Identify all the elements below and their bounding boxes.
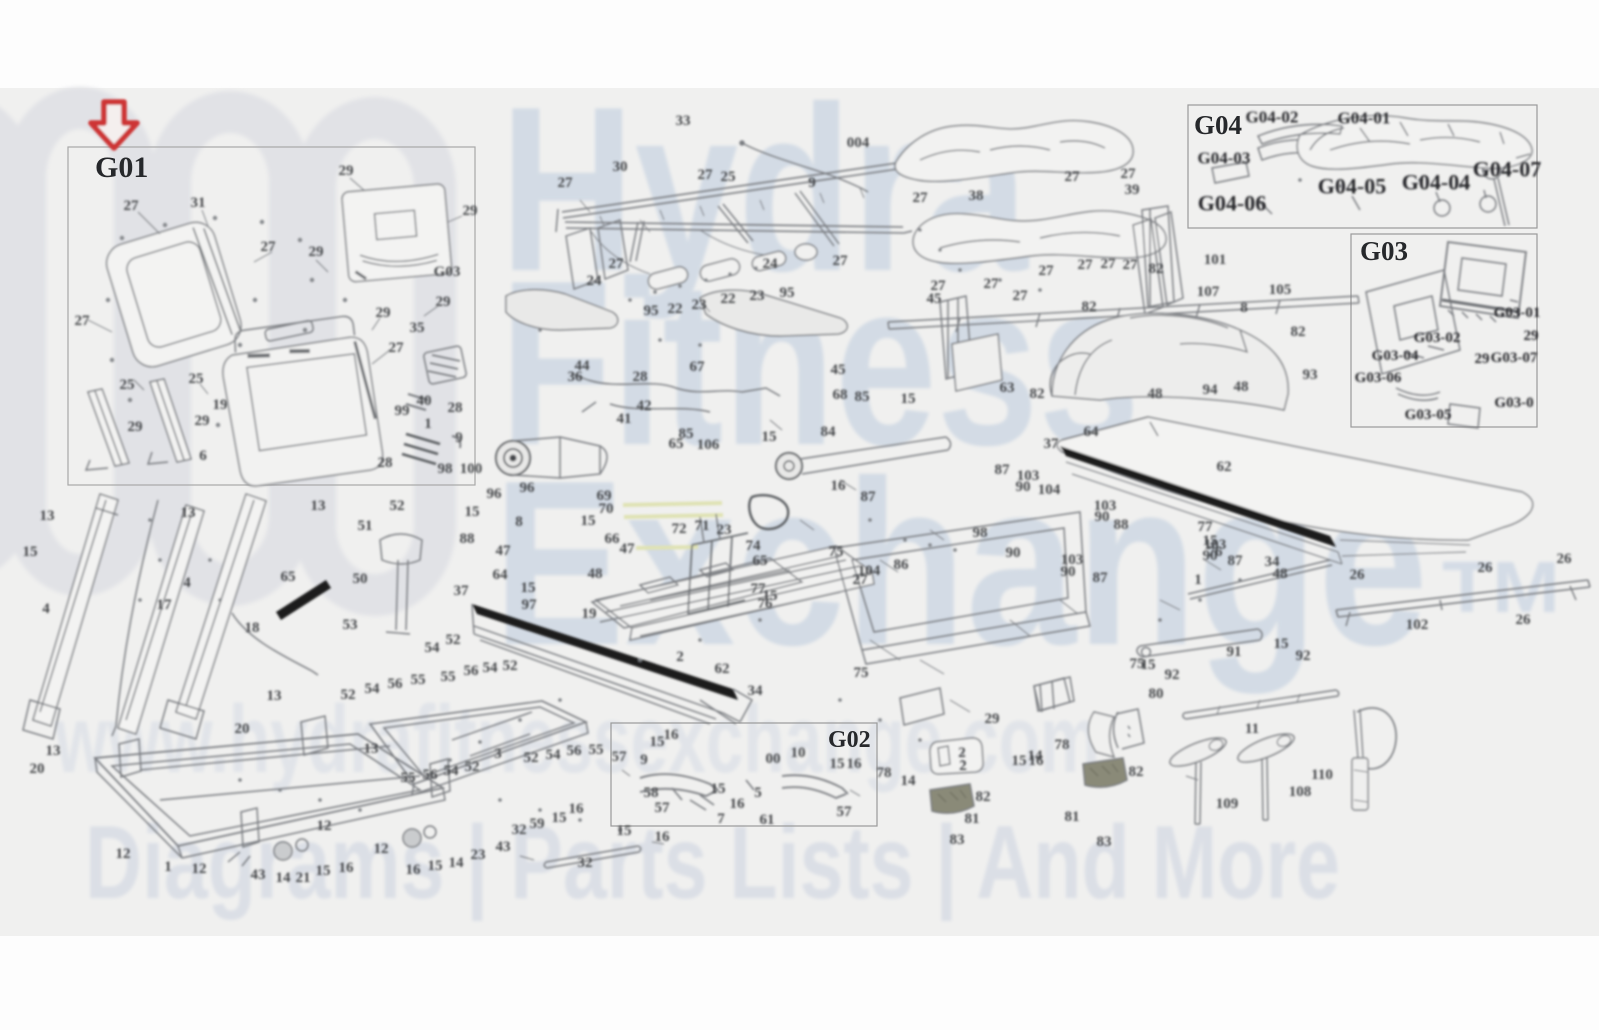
svg-text:33: 33 — [676, 113, 691, 129]
svg-text:92: 92 — [1165, 667, 1180, 683]
svg-text:61: 61 — [760, 812, 775, 828]
svg-text:52: 52 — [341, 687, 356, 703]
svg-text:G03-01: G03-01 — [1494, 305, 1541, 321]
svg-text:16: 16 — [730, 796, 746, 812]
svg-text:23: 23 — [471, 847, 486, 863]
svg-text:28: 28 — [633, 369, 648, 385]
svg-text:16: 16 — [655, 829, 671, 845]
svg-text:96: 96 — [487, 486, 503, 502]
svg-text:20: 20 — [235, 721, 250, 737]
svg-text:29: 29 — [309, 244, 324, 260]
svg-text:84: 84 — [821, 424, 837, 440]
svg-text:27: 27 — [389, 340, 405, 356]
svg-text:57: 57 — [612, 749, 628, 765]
svg-text:19: 19 — [582, 606, 597, 622]
svg-text:90: 90 — [1016, 479, 1031, 495]
svg-text:55: 55 — [411, 672, 426, 688]
svg-text:15: 15 — [521, 580, 536, 596]
svg-text:54: 54 — [365, 681, 381, 697]
svg-text:32: 32 — [512, 822, 527, 838]
svg-text:14: 14 — [901, 773, 917, 789]
svg-text:82: 82 — [1030, 386, 1045, 402]
svg-text:13: 13 — [364, 741, 379, 757]
svg-text:3: 3 — [494, 746, 502, 762]
svg-text:35: 35 — [410, 320, 425, 336]
svg-text:7: 7 — [717, 811, 725, 827]
svg-text:25: 25 — [721, 169, 736, 185]
svg-text:56: 56 — [567, 743, 583, 759]
svg-text:15: 15 — [1012, 753, 1027, 769]
svg-text:004: 004 — [847, 135, 870, 151]
svg-text:57: 57 — [655, 800, 671, 816]
svg-text:65: 65 — [669, 436, 684, 452]
svg-text:27: 27 — [609, 256, 625, 272]
svg-text:24: 24 — [763, 256, 779, 272]
svg-text:19: 19 — [213, 397, 228, 413]
svg-text:27: 27 — [853, 572, 869, 588]
svg-text:G03-0: G03-0 — [1494, 395, 1533, 411]
svg-text:50: 50 — [353, 571, 368, 587]
svg-text:98: 98 — [973, 525, 988, 541]
svg-text:12: 12 — [317, 818, 332, 834]
svg-text:15: 15 — [711, 781, 726, 797]
svg-text:13: 13 — [46, 743, 61, 759]
svg-text:91: 91 — [1227, 644, 1242, 660]
svg-text:16: 16 — [664, 727, 680, 743]
svg-text:12: 12 — [192, 861, 207, 877]
svg-text:15: 15 — [901, 391, 916, 407]
svg-text:34: 34 — [748, 683, 764, 699]
svg-text:88: 88 — [1114, 517, 1129, 533]
svg-text:76: 76 — [758, 596, 774, 612]
svg-text:G01: G01 — [95, 151, 148, 184]
svg-text:88: 88 — [460, 531, 475, 547]
svg-text:G04-07: G04-07 — [1473, 157, 1541, 182]
svg-text:1: 1 — [424, 416, 432, 432]
svg-text:13: 13 — [181, 505, 196, 521]
svg-text:64: 64 — [1084, 424, 1100, 440]
svg-text:58: 58 — [644, 785, 659, 801]
svg-text:27: 27 — [1078, 257, 1094, 273]
svg-text:100: 100 — [460, 461, 483, 477]
svg-text:47: 47 — [496, 543, 512, 559]
svg-text:28: 28 — [448, 400, 463, 416]
svg-text:5: 5 — [754, 785, 762, 801]
svg-text:65: 65 — [281, 569, 296, 585]
svg-text:56: 56 — [423, 767, 439, 783]
svg-text:30: 30 — [613, 159, 628, 175]
svg-text:G03-04: G03-04 — [1372, 348, 1419, 364]
svg-text:81: 81 — [1065, 809, 1080, 825]
svg-text:24: 24 — [587, 273, 603, 289]
svg-text:27: 27 — [1039, 263, 1055, 279]
svg-text:27: 27 — [1065, 169, 1081, 185]
svg-text:87: 87 — [995, 462, 1011, 478]
svg-text:14: 14 — [449, 855, 465, 871]
svg-text:102: 102 — [1406, 617, 1429, 633]
svg-text:6: 6 — [199, 448, 207, 464]
svg-text:15: 15 — [650, 734, 665, 750]
svg-text:18: 18 — [245, 620, 260, 636]
svg-text:14: 14 — [276, 870, 292, 886]
svg-text:32: 32 — [578, 855, 593, 871]
svg-text:70: 70 — [599, 501, 614, 517]
svg-text:26: 26 — [1516, 612, 1532, 628]
svg-text:97: 97 — [522, 597, 538, 613]
svg-text:15: 15 — [581, 513, 596, 529]
svg-text:106: 106 — [697, 437, 720, 453]
svg-text:TM: TM — [1442, 548, 1560, 628]
svg-text:54: 54 — [546, 747, 562, 763]
svg-text:75: 75 — [829, 544, 844, 560]
svg-text:72: 72 — [672, 521, 687, 537]
svg-text:16: 16 — [339, 860, 355, 876]
svg-text:83: 83 — [1097, 834, 1112, 850]
svg-text:27: 27 — [1121, 166, 1137, 182]
svg-text:4: 4 — [42, 601, 50, 617]
svg-text:83: 83 — [950, 832, 965, 848]
svg-text:92: 92 — [1296, 648, 1311, 664]
svg-text:16: 16 — [831, 478, 847, 494]
svg-text:15: 15 — [552, 810, 567, 826]
svg-text:27: 27 — [75, 313, 91, 329]
svg-text:40: 40 — [417, 393, 432, 409]
svg-text:85: 85 — [855, 389, 870, 405]
svg-text:26: 26 — [1557, 551, 1573, 567]
svg-text:39: 39 — [1125, 182, 1140, 198]
svg-text:87: 87 — [1228, 553, 1244, 569]
svg-text:78: 78 — [1055, 737, 1070, 753]
svg-text:8: 8 — [1240, 300, 1248, 316]
svg-text:20: 20 — [30, 761, 45, 777]
svg-text:9: 9 — [808, 175, 816, 191]
svg-text:16: 16 — [847, 756, 863, 772]
svg-text:86: 86 — [894, 557, 910, 573]
svg-text:29: 29 — [463, 203, 478, 219]
svg-text:1: 1 — [164, 859, 172, 875]
svg-text:31: 31 — [191, 195, 206, 211]
svg-text:53: 53 — [343, 617, 358, 633]
svg-text:G03-05: G03-05 — [1405, 407, 1452, 423]
svg-text:13: 13 — [267, 688, 282, 704]
svg-text:12: 12 — [116, 846, 131, 862]
svg-text:13: 13 — [40, 508, 55, 524]
svg-text:27: 27 — [1123, 257, 1139, 273]
svg-text:25: 25 — [120, 377, 135, 393]
svg-text:51: 51 — [358, 518, 373, 534]
svg-text:38: 38 — [969, 188, 984, 204]
svg-text:www.hydrafitnessexchange.com: www.hydrafitnessexchange.com — [54, 686, 1100, 793]
svg-text:75: 75 — [854, 665, 869, 681]
svg-text:54: 54 — [483, 660, 499, 676]
svg-text:71: 71 — [695, 518, 710, 534]
svg-text:87: 87 — [861, 489, 877, 505]
svg-text:G04-05: G04-05 — [1318, 174, 1386, 199]
svg-text:96: 96 — [520, 480, 536, 496]
svg-text:G03: G03 — [1360, 236, 1408, 266]
svg-text:107: 107 — [1197, 284, 1220, 300]
svg-text:43: 43 — [496, 839, 511, 855]
svg-text:G04-03: G04-03 — [1198, 149, 1251, 168]
svg-text:76: 76 — [1208, 544, 1224, 560]
svg-text:15: 15 — [1274, 636, 1289, 652]
svg-text:15: 15 — [428, 858, 443, 874]
svg-text:27: 27 — [124, 198, 140, 214]
svg-text:59: 59 — [530, 816, 545, 832]
svg-text:56: 56 — [388, 676, 404, 692]
svg-text:G03: G03 — [434, 264, 461, 280]
svg-text:00: 00 — [766, 751, 781, 767]
svg-text:52: 52 — [446, 632, 461, 648]
svg-text:37: 37 — [454, 583, 470, 599]
svg-text:16: 16 — [1029, 753, 1045, 769]
svg-text:10: 10 — [791, 745, 806, 761]
svg-text:21: 21 — [296, 870, 311, 886]
svg-text:G04-02: G04-02 — [1246, 108, 1299, 127]
svg-text:48: 48 — [1234, 379, 1249, 395]
svg-text:90: 90 — [1095, 509, 1110, 525]
svg-text:80: 80 — [1149, 686, 1164, 702]
svg-text:105: 105 — [1269, 282, 1292, 298]
svg-text:64: 64 — [493, 567, 509, 583]
svg-text:29: 29 — [376, 305, 391, 321]
svg-text:104: 104 — [1038, 482, 1061, 498]
svg-text:57: 57 — [837, 804, 853, 820]
svg-text:26: 26 — [1478, 560, 1494, 576]
svg-text:54: 54 — [425, 640, 441, 656]
svg-text:82: 82 — [1129, 764, 1144, 780]
svg-text:78: 78 — [877, 765, 892, 781]
svg-text:74: 74 — [746, 538, 762, 554]
svg-text:62: 62 — [715, 661, 730, 677]
svg-text:12: 12 — [374, 841, 389, 857]
svg-text:45: 45 — [927, 291, 942, 307]
svg-text:94: 94 — [1203, 382, 1219, 398]
svg-text:G03-07: G03-07 — [1491, 350, 1538, 366]
svg-text:29: 29 — [1475, 351, 1490, 367]
svg-text:2: 2 — [676, 649, 684, 665]
svg-text:15: 15 — [830, 756, 845, 772]
svg-text:G04: G04 — [1194, 110, 1242, 140]
svg-text:G03-06: G03-06 — [1355, 370, 1402, 386]
svg-text:13: 13 — [311, 498, 326, 514]
svg-text:27: 27 — [984, 276, 1000, 292]
svg-text:48: 48 — [1148, 386, 1163, 402]
svg-text:29: 29 — [195, 413, 210, 429]
svg-text:98: 98 — [438, 461, 453, 477]
svg-text:23: 23 — [750, 288, 765, 304]
svg-text:82: 82 — [1149, 261, 1164, 277]
svg-text:25: 25 — [189, 371, 204, 387]
svg-text:9: 9 — [455, 430, 463, 446]
svg-text:55: 55 — [401, 770, 416, 786]
svg-text:29: 29 — [436, 294, 451, 310]
svg-text:G02: G02 — [828, 727, 871, 753]
svg-text:23: 23 — [692, 297, 707, 313]
svg-text:11: 11 — [1245, 721, 1259, 737]
svg-text:95: 95 — [780, 285, 795, 301]
svg-text:52: 52 — [465, 759, 480, 775]
svg-text:63: 63 — [1000, 380, 1015, 396]
svg-text:26: 26 — [1350, 567, 1366, 583]
svg-text:47: 47 — [620, 541, 636, 557]
svg-text:36: 36 — [568, 369, 584, 385]
svg-text:93: 93 — [1303, 367, 1318, 383]
svg-text:99: 99 — [395, 403, 410, 419]
svg-text:82: 82 — [976, 789, 991, 805]
svg-text:66: 66 — [605, 531, 621, 547]
svg-text:41: 41 — [617, 411, 632, 427]
svg-text:48: 48 — [1273, 566, 1288, 582]
svg-text:82: 82 — [1082, 299, 1097, 315]
svg-text:27: 27 — [913, 190, 929, 206]
svg-text:29: 29 — [985, 711, 1000, 727]
svg-text:29: 29 — [339, 163, 354, 179]
svg-text:90: 90 — [1061, 564, 1076, 580]
svg-text:90: 90 — [1006, 545, 1021, 561]
svg-text:23: 23 — [717, 522, 732, 538]
svg-text:29: 29 — [128, 419, 143, 435]
svg-text:27: 27 — [1013, 288, 1029, 304]
svg-text:27: 27 — [698, 167, 714, 183]
svg-text:29: 29 — [1524, 328, 1539, 344]
svg-text:15: 15 — [1141, 657, 1156, 673]
svg-text:16: 16 — [406, 862, 422, 878]
svg-text:27: 27 — [833, 253, 849, 269]
svg-text:G03-02: G03-02 — [1414, 330, 1461, 346]
svg-text:55: 55 — [441, 669, 456, 685]
svg-text:109: 109 — [1216, 796, 1239, 812]
svg-text:Diagrams | Parts Lists | And M: Diagrams | Parts Lists | And More — [85, 805, 1340, 922]
svg-text:15: 15 — [617, 823, 632, 839]
svg-text:4: 4 — [183, 575, 191, 591]
svg-text:81: 81 — [965, 811, 980, 827]
svg-text:68: 68 — [833, 387, 848, 403]
svg-text:101: 101 — [1204, 252, 1227, 268]
svg-text:55: 55 — [589, 742, 604, 758]
svg-text:48: 48 — [588, 566, 603, 582]
svg-text:87: 87 — [1093, 570, 1109, 586]
svg-text:27: 27 — [1101, 256, 1117, 272]
svg-text:G04-04: G04-04 — [1402, 170, 1470, 195]
svg-text:8: 8 — [515, 514, 523, 530]
svg-text:67: 67 — [690, 359, 706, 375]
svg-text:15: 15 — [762, 429, 777, 445]
svg-text:52: 52 — [390, 498, 405, 514]
svg-text:82: 82 — [1291, 324, 1306, 340]
svg-text:52: 52 — [503, 658, 518, 674]
svg-text:22: 22 — [668, 301, 683, 317]
svg-text:110: 110 — [1311, 767, 1333, 783]
svg-text:27: 27 — [558, 175, 574, 191]
svg-text:17: 17 — [157, 597, 173, 613]
svg-text:56: 56 — [464, 663, 480, 679]
svg-text:9: 9 — [640, 752, 648, 768]
svg-text:65: 65 — [753, 553, 768, 569]
svg-text:15: 15 — [316, 863, 331, 879]
svg-text:108: 108 — [1289, 784, 1312, 800]
svg-text:28: 28 — [378, 455, 393, 471]
svg-text:42: 42 — [637, 398, 652, 414]
svg-text:22: 22 — [721, 291, 736, 307]
svg-text:G04-06: G04-06 — [1198, 191, 1266, 216]
svg-text:15: 15 — [23, 544, 38, 560]
svg-text:16: 16 — [569, 801, 585, 817]
svg-text:2: 2 — [959, 758, 967, 774]
svg-text:37: 37 — [1044, 436, 1060, 452]
svg-text:1: 1 — [1194, 572, 1202, 588]
svg-text:27: 27 — [261, 239, 277, 255]
svg-text:15: 15 — [465, 504, 480, 520]
svg-text:95: 95 — [644, 303, 659, 319]
svg-text:G04-01: G04-01 — [1338, 109, 1391, 128]
svg-text:52: 52 — [524, 750, 539, 766]
svg-text:45: 45 — [831, 362, 846, 378]
svg-text:43: 43 — [251, 867, 266, 883]
svg-text:54: 54 — [444, 763, 460, 779]
svg-text:62: 62 — [1217, 459, 1232, 475]
